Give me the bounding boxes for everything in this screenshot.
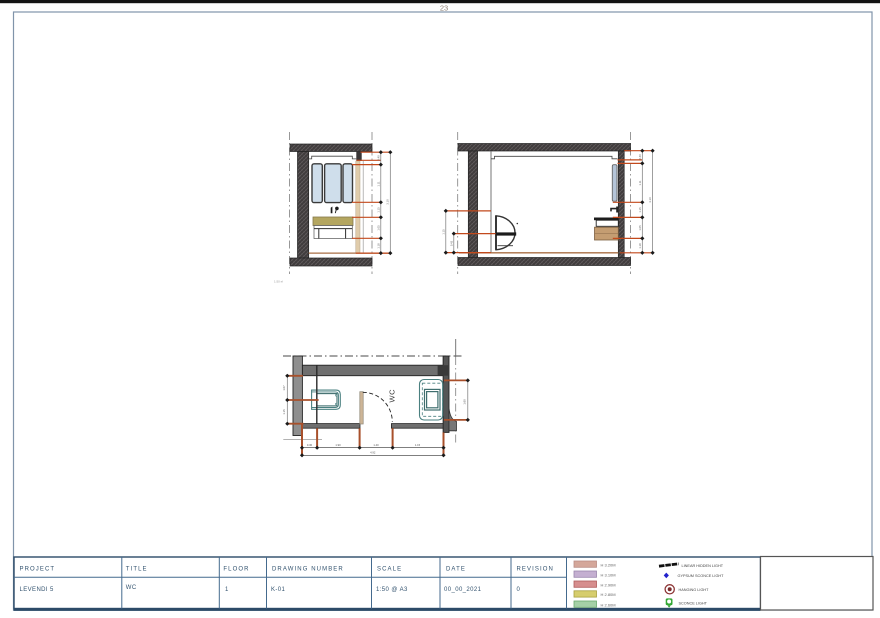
svg-text:WC: WC <box>126 585 137 591</box>
svg-text:WC: WC <box>388 389 397 403</box>
svg-text:1.18: 1.18 <box>376 243 380 249</box>
svg-text:1.15: 1.15 <box>376 207 380 213</box>
svg-text:0.40: 0.40 <box>376 155 380 161</box>
svg-text:0.43: 0.43 <box>449 240 453 246</box>
svg-text:H 2.90M: H 2.90M <box>601 582 616 587</box>
svg-text:1.11: 1.11 <box>638 180 642 186</box>
svg-text:LEVENDI 5: LEVENDI 5 <box>20 587 55 593</box>
svg-text:1: 1 <box>225 587 229 593</box>
svg-text:HANGING LIGHT: HANGING LIGHT <box>679 588 710 592</box>
svg-text:1.15: 1.15 <box>415 443 421 447</box>
svg-text:3.10: 3.10 <box>648 197 652 203</box>
svg-text:1:50 el: 1:50 el <box>274 280 283 284</box>
svg-text:1.05: 1.05 <box>376 225 380 231</box>
svg-text:K-01: K-01 <box>271 587 286 593</box>
svg-text:DRAWING NUMBER: DRAWING NUMBER <box>272 567 344 573</box>
svg-text:1.15: 1.15 <box>638 207 642 213</box>
svg-text:1.07: 1.07 <box>282 385 286 391</box>
svg-text:0.30: 0.30 <box>307 443 313 447</box>
svg-text:LINEAR HIDDEN LIGHT: LINEAR HIDDEN LIGHT <box>682 564 724 568</box>
svg-text:FLOOR: FLOOR <box>223 567 249 573</box>
svg-text:H 3.20M: H 3.20M <box>601 562 616 567</box>
svg-text:DATE: DATE <box>446 567 466 573</box>
svg-text:1.18: 1.18 <box>638 243 642 249</box>
svg-text:1.15: 1.15 <box>282 409 286 415</box>
svg-text:23: 23 <box>440 4 448 13</box>
svg-text:1.60: 1.60 <box>463 399 467 405</box>
svg-text:1:50 @ A3: 1:50 @ A3 <box>376 587 408 593</box>
svg-text:H 3.10M: H 3.10M <box>601 572 616 577</box>
svg-text:SCONCE LIGHT: SCONCE LIGHT <box>679 602 708 606</box>
svg-text:0.40: 0.40 <box>638 154 642 160</box>
svg-text:GYPSUM SCONCE LIGHT: GYPSUM SCONCE LIGHT <box>678 574 725 578</box>
svg-text:1.05: 1.05 <box>638 225 642 231</box>
svg-text:1.11: 1.11 <box>376 181 380 187</box>
svg-text:3.10: 3.10 <box>386 199 390 205</box>
svg-text:00_00_2021: 00_00_2021 <box>444 587 482 593</box>
svg-text:PROJECT: PROJECT <box>20 567 56 573</box>
svg-text:1.40: 1.40 <box>373 443 379 447</box>
svg-text:1.15: 1.15 <box>441 229 445 235</box>
svg-text:TITLE: TITLE <box>126 567 148 573</box>
svg-text:0: 0 <box>517 587 521 593</box>
svg-text:4.92: 4.92 <box>370 451 376 455</box>
svg-text:H 2.60M: H 2.60M <box>601 602 616 607</box>
svg-text:1.90: 1.90 <box>335 443 341 447</box>
svg-text:REVISION: REVISION <box>517 567 554 573</box>
svg-text:H 2.80M: H 2.80M <box>601 592 616 597</box>
svg-text:SCALE: SCALE <box>377 567 402 573</box>
